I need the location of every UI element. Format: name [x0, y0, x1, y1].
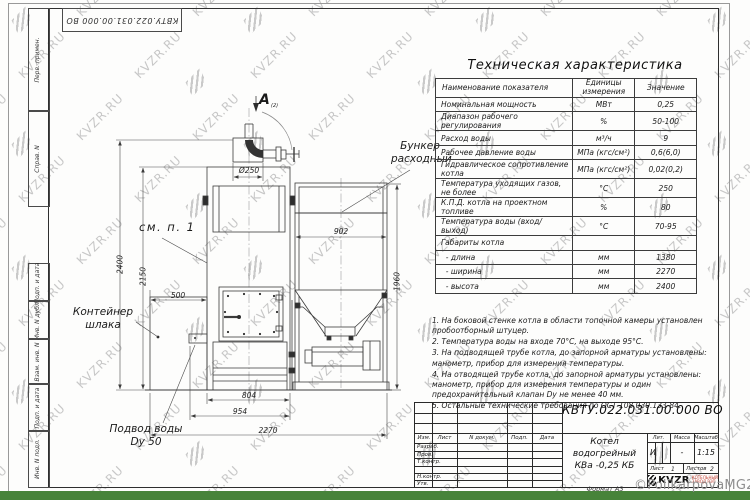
tb-sheet-label: Лист [650, 466, 664, 472]
slag-label-line2: шлака [66, 319, 140, 332]
titleblock-line [415, 480, 562, 481]
view-a-sheet-ref: (2) [271, 103, 278, 109]
titleblock-line [415, 458, 562, 459]
tb-product-name-line2: КВа -0,25 КБ [562, 460, 647, 472]
slag-label-line1: Контейнер [66, 306, 140, 319]
technical-note: 4. На отводящей трубе котла, до запорной… [432, 370, 713, 400]
tech-table-cell: 80 [635, 198, 697, 217]
tech-characteristics-table: Наименование показателя Единицы измерени… [435, 78, 697, 294]
tech-table-cell: м³/ч [573, 131, 635, 145]
hopper-outline [145, 183, 392, 390]
tech-table-row: Температура уходящих газов, не более°С25… [436, 179, 697, 198]
tech-table-cell [635, 236, 697, 250]
tb-col-list: Лист [432, 435, 457, 441]
tech-table-row: - длинамм1380 [436, 250, 697, 264]
tech-table-cell: % [573, 112, 635, 131]
tb-product-name: Котел водогрейный КВа -0,25 КБ [562, 436, 647, 472]
titleblock-line [532, 403, 533, 487]
water-supply-label: Подвод воды Dу 50 [98, 423, 194, 448]
tech-table-cell: 50-100 [635, 112, 697, 131]
tb-sheets-label: Листов [686, 466, 707, 472]
tb-mass-label: Масса [670, 435, 694, 441]
titleblock-line [415, 451, 562, 452]
titleblock-line [507, 403, 508, 487]
tech-table-row: Гидравлическое сопротивление котлаМПа (к… [436, 160, 697, 179]
titleblock-line [415, 413, 562, 414]
tech-table-cell: МПа (кгс/см²) [573, 145, 635, 159]
tb-col-data: Дата [532, 435, 562, 441]
tech-table-row: Рабочее давление водыМПа (кгс/см²)0,6(6,… [436, 145, 697, 159]
tb-doc-number: КВТУ.022.031.00.000 ВО [562, 403, 718, 433]
tech-table-cell: - ширина [436, 264, 573, 278]
tb-scale-label: Масштаб [694, 435, 718, 441]
title-block: Изм. Лист N докум. Подп. Дата Разраб. Пр… [414, 402, 719, 488]
boiler-outline [150, 167, 295, 390]
tech-header-name: Наименование показателя [436, 79, 573, 98]
dim-diameter-250: Ø250 [231, 166, 267, 175]
dim-2150: 2150 [139, 257, 148, 297]
tb-row-utv: Утв. [417, 481, 429, 487]
tech-table-cell: мм [573, 279, 635, 293]
tech-table-cell: - длина [436, 250, 573, 264]
tech-table-cell: мм [573, 264, 635, 278]
titleblock-line [647, 442, 718, 443]
tb-lit-label: Лит. [647, 435, 670, 441]
tech-table-cell: °С [573, 217, 635, 236]
drawing-sheet: KVZR.RUKVZR.RUKVZR.RUKVZR.RUKVZR.RUKVZR.… [0, 0, 750, 500]
see-note-label: см. п. 1 [139, 221, 195, 234]
dim-2270: 2270 [240, 426, 296, 435]
tech-table-cell: Диапазон рабочего регулирования [436, 112, 573, 131]
tech-table-row: Температура воды (вход/выход)°С70-95 [436, 217, 697, 236]
tech-table-cell: 70-95 [635, 217, 697, 236]
tb-col-izm: Изм. [416, 435, 432, 441]
titleblock-line [415, 473, 562, 474]
titleblock-line [415, 466, 562, 467]
titleblock-line [662, 442, 663, 463]
tech-table-cell: Температура уходящих газов, не более [436, 179, 573, 198]
titleblock-line [647, 473, 718, 474]
tech-table-header-row: Наименование показателя Единицы измерени… [436, 79, 697, 98]
tech-table-cell: К.П.Д. котла на проектном топливе [436, 198, 573, 217]
tech-table-cell: МВт [573, 98, 635, 112]
tech-table-cell [573, 236, 635, 250]
tech-table-row: Габариты котла [436, 236, 697, 250]
tech-table-cell: 9 [635, 131, 697, 145]
tech-table-cell: мм [573, 250, 635, 264]
tech-table-cell: 0,02(0,2) [635, 160, 697, 179]
copyright-watermark: ©PolikarpovaMG2021 [634, 478, 750, 493]
titleblock-line [655, 442, 656, 463]
tech-table-row: К.П.Д. котла на проектном топливе%80 [436, 198, 697, 217]
tech-table-cell: °С [573, 179, 635, 198]
tb-product-name-line1: Котел водогрейный [562, 436, 647, 460]
view-a-label: A [259, 92, 270, 108]
tech-table-row: Номинальная мощностьМВт0,25 [436, 98, 697, 112]
dim-2400: 2400 [116, 245, 125, 285]
titleblock-line [562, 403, 563, 487]
tech-table-cell: Рабочее давление воды [436, 145, 573, 159]
slag-container-label: Контейнер шлака [66, 306, 140, 331]
tb-row-nkontr: Н.контр. [417, 474, 442, 480]
titleblock-line [683, 463, 684, 473]
tech-table-row: Диапазон рабочего регулирования%50-100 [436, 112, 697, 131]
tech-table-cell: 250 [635, 179, 697, 198]
dim-804: 804 [227, 391, 271, 400]
tech-table-cell: Расход воды [436, 131, 573, 145]
titleblock-line [415, 443, 562, 444]
tb-col-ndoc: N докум. [457, 435, 507, 441]
tb-sheets-value: 2 [710, 466, 714, 473]
dim-500: 500 [158, 291, 198, 300]
technical-note: 1. На боковой стенке котла в области топ… [432, 316, 713, 336]
tech-table-cell: МПа (кгс/см²) [573, 160, 635, 179]
technical-notes: 1. На боковой стенке котла в области топ… [432, 316, 713, 412]
tech-table-cell: 2400 [635, 279, 697, 293]
tech-table-row: Расход водым³/ч9 [436, 131, 697, 145]
titleblock-line [694, 433, 695, 463]
titleblock-line [432, 403, 433, 487]
titleblock-line [415, 423, 562, 424]
tb-row-razrab: Разраб. [417, 444, 439, 450]
tb-sheet-value: 1 [671, 466, 675, 473]
tech-table-cell: Номинальная мощность [436, 98, 573, 112]
tech-table-cell: 2270 [635, 264, 697, 278]
tech-table-cell: Габариты котла [436, 236, 573, 250]
tb-row-tkontr: Т.контр. [417, 459, 441, 465]
dim-954: 954 [218, 407, 262, 416]
tb-scale-value: 1:15 [694, 448, 718, 457]
tech-table-cell: % [573, 198, 635, 217]
tech-table-title: Техническая характеристика [450, 58, 700, 73]
technical-note: 3. На подводящей трубе котла, до запорно… [432, 348, 713, 368]
tech-header-units: Единицы измерения [573, 79, 635, 98]
tech-table-cell: Гидравлическое сопротивление котла [436, 160, 573, 179]
titleblock-line [415, 433, 718, 434]
water-label-line1: Подвод воды [98, 423, 194, 436]
titleblock-line [457, 403, 458, 487]
dim-1960: 1960 [393, 262, 402, 302]
water-label-line2: Dу 50 [98, 436, 194, 449]
tb-mass-value: - [670, 448, 694, 457]
titleblock-line [670, 433, 671, 463]
tech-table-cell: - высота [436, 279, 573, 293]
tech-table-cell: 0,25 [635, 98, 697, 112]
technical-note: 2. Температура воды на входе 70°С, на вы… [432, 337, 713, 347]
tb-col-podp: Подп. [507, 435, 532, 441]
tech-table-row: - высотамм2400 [436, 279, 697, 293]
dim-902: 902 [319, 227, 363, 236]
tech-header-value: Значение [635, 79, 697, 98]
tech-table-cell: Температура воды (вход/выход) [436, 217, 573, 236]
tech-table-cell: 1380 [635, 250, 697, 264]
tech-table-cell: 0,6(6,0) [635, 145, 697, 159]
tech-table-row: - ширинамм2270 [436, 264, 697, 278]
tb-row-prov: Пров. [417, 452, 433, 458]
